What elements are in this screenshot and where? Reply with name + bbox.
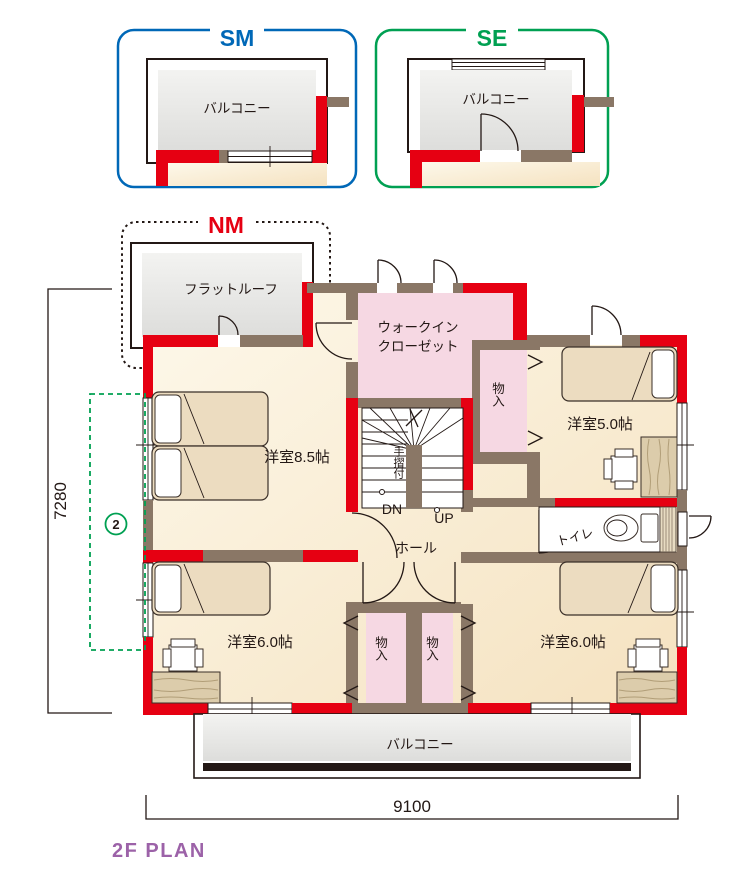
inset-sm: SM バルコニー <box>118 24 356 187</box>
nm-title: NM <box>208 212 244 238</box>
wall-segment <box>461 552 687 563</box>
wall-segment <box>397 283 433 293</box>
room-60l-label: 洋室6.0帖 <box>227 634 293 651</box>
se-title: SE <box>477 25 508 51</box>
plan-title: 2F PLAN <box>112 840 206 862</box>
floor-plan-drawing: SM バルコニー SE バルコニー <box>0 0 740 880</box>
chair <box>169 645 197 671</box>
floor-plan-page: SM バルコニー SE バルコニー <box>0 0 740 880</box>
door-arc <box>378 260 401 283</box>
stairs-up-label: UP <box>434 510 453 526</box>
door-gap <box>218 335 240 347</box>
wall-segment <box>346 362 358 398</box>
wall-segment <box>406 613 422 703</box>
wall-segment <box>156 150 168 186</box>
wall-segment <box>513 283 527 345</box>
closet-right-label: 物入 <box>424 636 438 661</box>
wall-segment <box>327 97 349 107</box>
chair-back <box>604 459 612 479</box>
door-arc <box>689 516 711 538</box>
toilet-bowl-icon <box>604 515 638 541</box>
toilet-tank-icon <box>641 514 658 542</box>
chair-arm <box>628 649 636 667</box>
wall-segment <box>472 340 540 350</box>
sm-title: SM <box>220 25 255 51</box>
bed-pillow <box>155 395 181 443</box>
wall-segment <box>307 283 377 293</box>
sm-balcony-label: バルコニー <box>203 101 270 116</box>
hall-label: ホール <box>395 540 437 556</box>
wall-segment <box>346 293 358 320</box>
closet-upper-label: 物入 <box>490 382 504 407</box>
chair <box>611 456 637 482</box>
wic-label-line1: ウォークイン <box>378 320 459 335</box>
wall-segment <box>358 398 461 408</box>
wall-segment <box>153 550 203 562</box>
wall-segment <box>143 337 153 398</box>
bed-pillow <box>155 449 181 497</box>
bed-pillow <box>155 565 181 612</box>
bottom-balcony: バルコニー <box>194 714 640 778</box>
wall-segment <box>473 498 555 507</box>
chair-arm <box>660 649 668 667</box>
dimension-height: 7280 <box>51 482 70 520</box>
bed-pillow <box>652 350 674 398</box>
wall-segment <box>521 150 572 162</box>
window-small <box>678 512 687 546</box>
option-2-number: 2 <box>112 517 119 532</box>
balcony-edge <box>203 763 631 771</box>
dimension-width: 9100 <box>393 797 431 816</box>
wall-segment <box>240 335 303 347</box>
wall-segment <box>472 452 540 464</box>
wall-segment <box>677 647 687 715</box>
sm-floor <box>168 163 327 186</box>
wall-segment <box>312 150 327 163</box>
room-50-label: 洋室5.0帖 <box>567 416 633 433</box>
door-arc <box>434 260 457 283</box>
se-hatch <box>452 59 545 70</box>
closet-left-label: 物入 <box>373 636 387 661</box>
nm-roof-label: フラットルーフ <box>184 282 278 297</box>
option-2-zone: 2 <box>90 394 145 650</box>
se-balcony-floor <box>420 70 572 151</box>
toilet-room: トイレ <box>539 507 676 552</box>
wall-segment <box>346 398 358 512</box>
chair <box>634 645 662 671</box>
wall-segment <box>410 150 422 188</box>
wic-label-line2: クローゼット <box>378 339 459 354</box>
door-arc <box>592 306 621 335</box>
wall-segment <box>358 602 461 613</box>
main-plan: 手摺付 DN UP トイレ <box>136 260 711 778</box>
door-gap <box>480 150 521 162</box>
wall-segment <box>555 498 677 507</box>
chair-back <box>636 639 660 647</box>
room-85-label: 洋室8.5帖 <box>264 449 330 466</box>
wall-segment <box>584 97 614 107</box>
chair-arm <box>615 449 633 457</box>
wall-segment <box>572 95 584 152</box>
wall-segment <box>677 335 687 403</box>
chair-back <box>171 639 195 647</box>
wall-segment <box>143 335 218 347</box>
se-floor <box>422 162 600 186</box>
wall-segment <box>622 335 640 347</box>
wall-segment <box>143 500 153 550</box>
toilet-shelf <box>660 507 676 552</box>
bed-pillow <box>651 565 675 612</box>
wall-segment <box>303 550 358 562</box>
se-balcony-label: バルコニー <box>462 92 529 107</box>
handrail-label: 手摺付 <box>392 445 405 480</box>
chair-arm <box>195 649 203 667</box>
wall-segment <box>453 283 463 293</box>
wall-segment <box>219 150 228 163</box>
room-60r-label: 洋室6.0帖 <box>540 634 606 651</box>
wall-segment <box>203 550 303 562</box>
handrail-post <box>380 490 385 495</box>
balcony-label: バルコニー <box>386 737 453 752</box>
staircase: 手摺付 DN UP <box>362 408 463 526</box>
wall-segment <box>472 350 480 452</box>
chair-arm <box>615 481 633 489</box>
chair-arm <box>163 649 171 667</box>
stairs-down-label: DN <box>382 501 402 517</box>
stair-divider <box>406 445 422 508</box>
inset-se: SE バルコニー <box>376 24 614 188</box>
